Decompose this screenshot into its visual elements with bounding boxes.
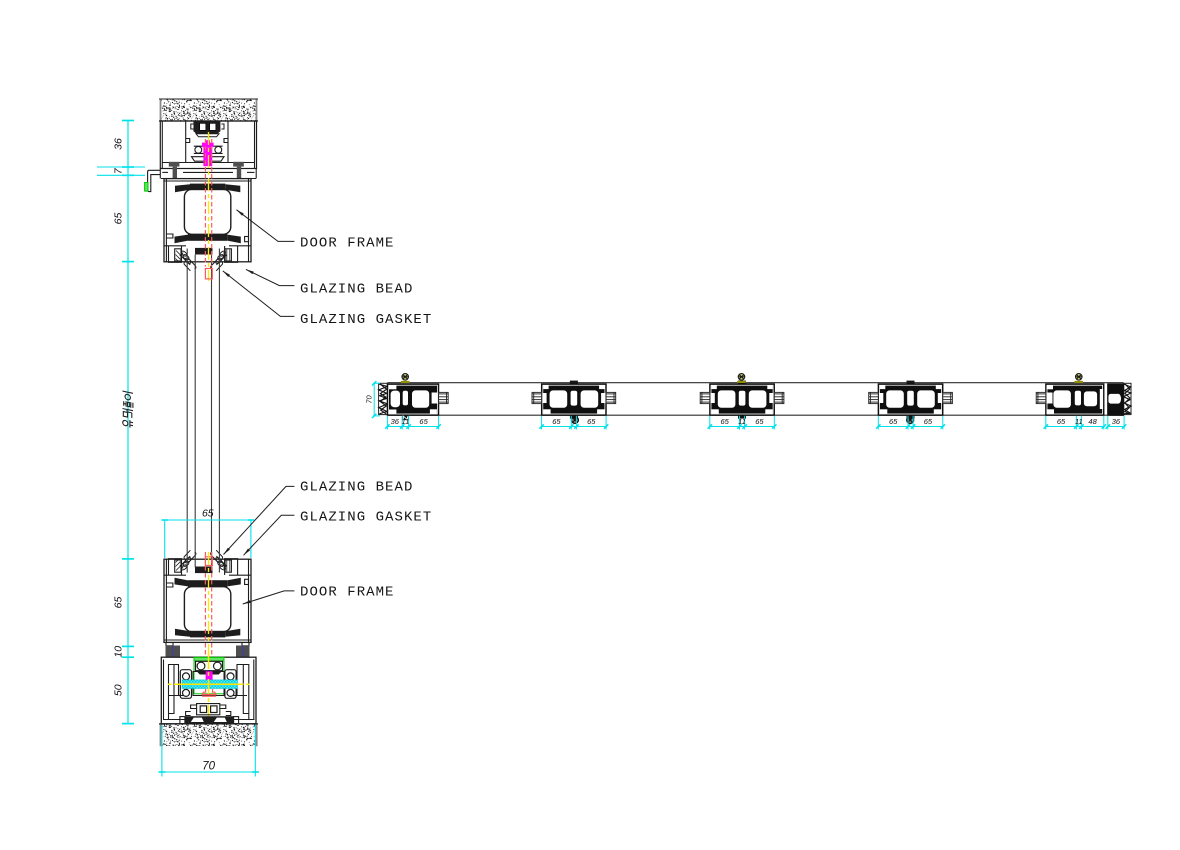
- svg-text:65: 65: [113, 597, 125, 609]
- svg-text:65: 65: [889, 417, 898, 426]
- svg-text:11: 11: [402, 417, 410, 426]
- svg-text:36: 36: [113, 138, 125, 150]
- svg-text:11: 11: [738, 417, 746, 426]
- svg-text:65: 65: [755, 417, 764, 426]
- svg-text:36: 36: [391, 417, 400, 426]
- svg-text:70: 70: [365, 395, 374, 404]
- svg-text:GLAZING GASKET: GLAZING GASKET: [300, 509, 432, 525]
- svg-text:65: 65: [924, 417, 933, 426]
- svg-text:DOOR FRAME: DOOR FRAME: [300, 584, 395, 600]
- svg-text:65: 65: [419, 417, 428, 426]
- svg-text:48: 48: [1088, 417, 1097, 426]
- svg-text:65: 65: [1057, 417, 1066, 426]
- svg-text:11: 11: [1075, 417, 1083, 426]
- svg-text:36: 36: [1112, 417, 1121, 426]
- svg-text:65: 65: [552, 417, 561, 426]
- svg-text:10: 10: [113, 646, 125, 658]
- svg-text:GLAZING GASKET: GLAZING GASKET: [300, 312, 432, 328]
- svg-text:50: 50: [113, 684, 125, 696]
- svg-text:65: 65: [587, 417, 596, 426]
- svg-text:65: 65: [113, 213, 125, 225]
- svg-text:70: 70: [202, 761, 215, 773]
- svg-text:DOOR FRAME: DOOR FRAME: [300, 236, 395, 252]
- svg-text:GLAZING BEAD: GLAZING BEAD: [300, 480, 413, 496]
- svg-text:GLAZING BEAD: GLAZING BEAD: [300, 281, 413, 297]
- svg-text:65: 65: [202, 508, 214, 520]
- svg-text:65: 65: [720, 417, 729, 426]
- svg-text:7: 7: [113, 167, 125, 174]
